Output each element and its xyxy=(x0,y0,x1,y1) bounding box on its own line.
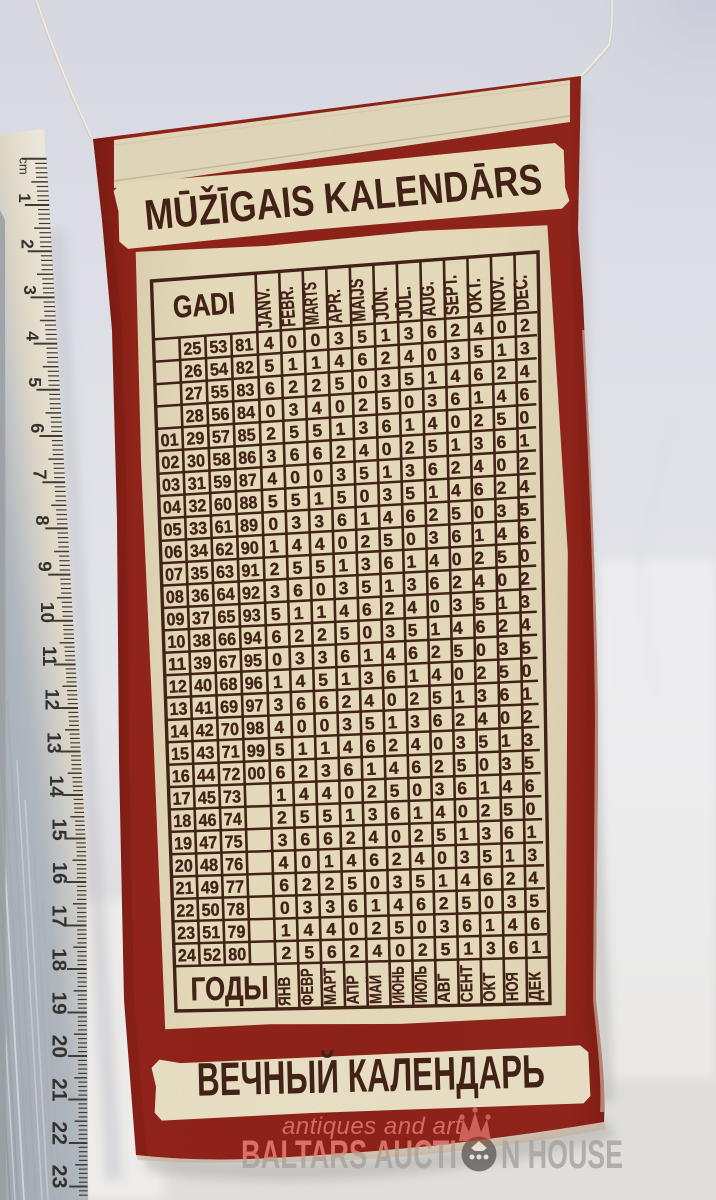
svg-text:BALTARS AUCTI: BALTARS AUCTI xyxy=(241,1133,457,1177)
svg-text:N HOUSE: N HOUSE xyxy=(501,1133,623,1177)
